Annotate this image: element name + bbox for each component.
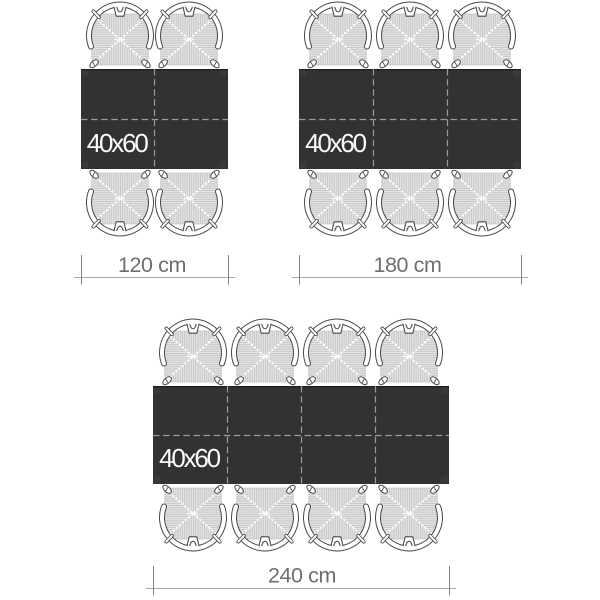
svg-text:180 cm: 180 cm <box>373 253 441 277</box>
svg-text:40x60: 40x60 <box>159 443 221 473</box>
svg-text:120 cm: 120 cm <box>118 253 186 277</box>
svg-text:40x60: 40x60 <box>87 128 149 158</box>
svg-text:40x60: 40x60 <box>305 128 367 158</box>
svg-text:240 cm: 240 cm <box>268 564 336 588</box>
